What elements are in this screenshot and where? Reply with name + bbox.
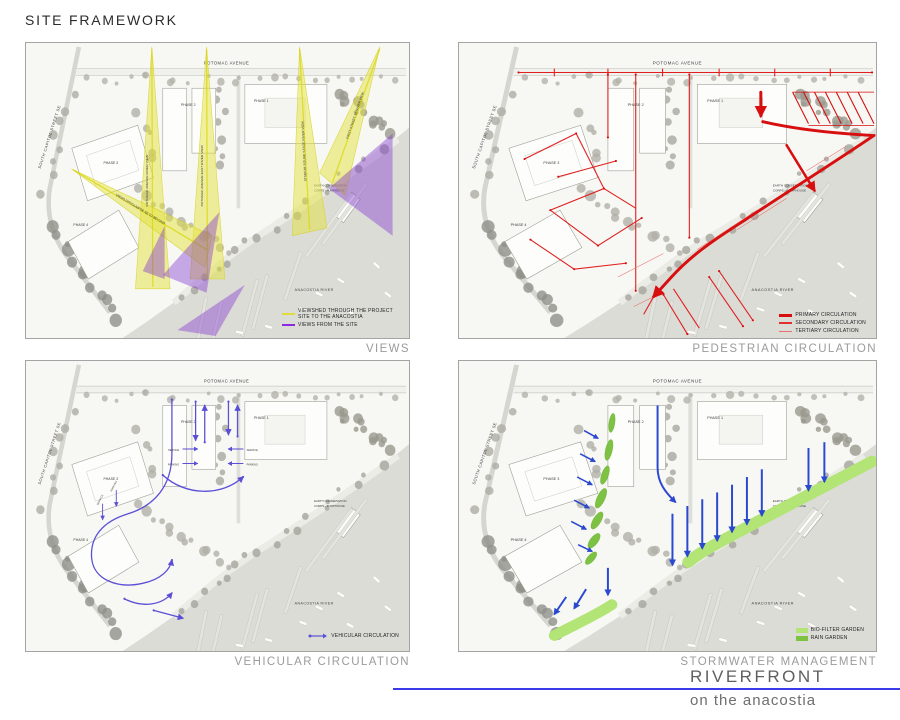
view-cone-label: POTOMAC AVENUE EAST RIVER VIEW (200, 144, 204, 206)
parking-label: PARKING (247, 462, 258, 466)
legend-row: SECONDARY CIRCULATION (779, 320, 866, 326)
vehicular-arrow-swatch (308, 633, 328, 639)
stormwater-legend: BIO-FILTER GARDEN RAIN GARDEN (796, 627, 864, 641)
panel-views: POTOMAC AVENUE RIVER VIEW POTOMAC AVENUE… (25, 42, 410, 355)
pedestrian-legend: PRIMARY CIRCULATION SECONDARY CIRCULATIO… (779, 312, 866, 334)
project-subtitle: on the anacostia (690, 692, 816, 709)
panel-stormwater: BIO-FILTER GARDEN RAIN GARDEN STORMWATER… (458, 360, 877, 668)
legend-row: VIEWS FROM THE SITE (282, 322, 403, 328)
parking-label: PARKING (168, 462, 179, 466)
legend-row: VEHICULAR CIRCULATION (308, 633, 399, 639)
views-legend: VIEWSHED THROUGH THE PROJECT SITE TO THE… (282, 308, 403, 328)
legend-row: BIO-FILTER GARDEN (796, 627, 864, 633)
legend-row: PRIMARY CIRCULATION (779, 312, 866, 318)
panel-pedestrian: PRIMARY CIRCULATION SECONDARY CIRCULATIO… (458, 42, 877, 355)
service-label: SERVICE (168, 448, 179, 452)
pedestrian-caption: PEDESTRIAN CIRCULATION (458, 343, 877, 355)
legend-row: RAIN GARDEN (796, 635, 864, 641)
vehicular-legend: VEHICULAR CIRCULATION (308, 633, 399, 639)
primary-swatch (779, 314, 792, 317)
views-map: POTOMAC AVENUE RIVER VIEW POTOMAC AVENUE… (26, 43, 409, 338)
viewshed-swatch (282, 313, 295, 316)
vehicular-map: SERVICE SERVICE PARKING PARKING PARKING … (26, 361, 409, 651)
presentation-board: SITE FRAMEWORK (0, 0, 900, 720)
pedestrian-map (459, 43, 876, 338)
views-caption: VIEWS (25, 343, 410, 355)
biofilter-swatch (796, 628, 808, 633)
page-title: SITE FRAMEWORK (25, 12, 178, 28)
raingarden-swatch (796, 636, 808, 641)
project-title: RIVERFRONT (690, 667, 826, 687)
views-from-site-swatch (282, 324, 295, 327)
service-label: SERVICE (247, 448, 258, 452)
legend-row: TERTIARY CIRCULATION (779, 328, 866, 334)
view-cone-label: POTOMAC AVENUE RIVER VIEW (145, 154, 149, 207)
panel-vehicular: SERVICE SERVICE PARKING PARKING PARKING … (25, 360, 410, 668)
legend-row: VIEWSHED THROUGH THE PROJECT SITE TO THE… (282, 308, 403, 320)
stormwater-map (459, 361, 876, 651)
tertiary-swatch (779, 331, 792, 332)
vehicular-caption: VEHICULAR CIRCULATION (25, 656, 410, 668)
secondary-swatch (779, 322, 792, 323)
footer-rule (393, 688, 900, 690)
